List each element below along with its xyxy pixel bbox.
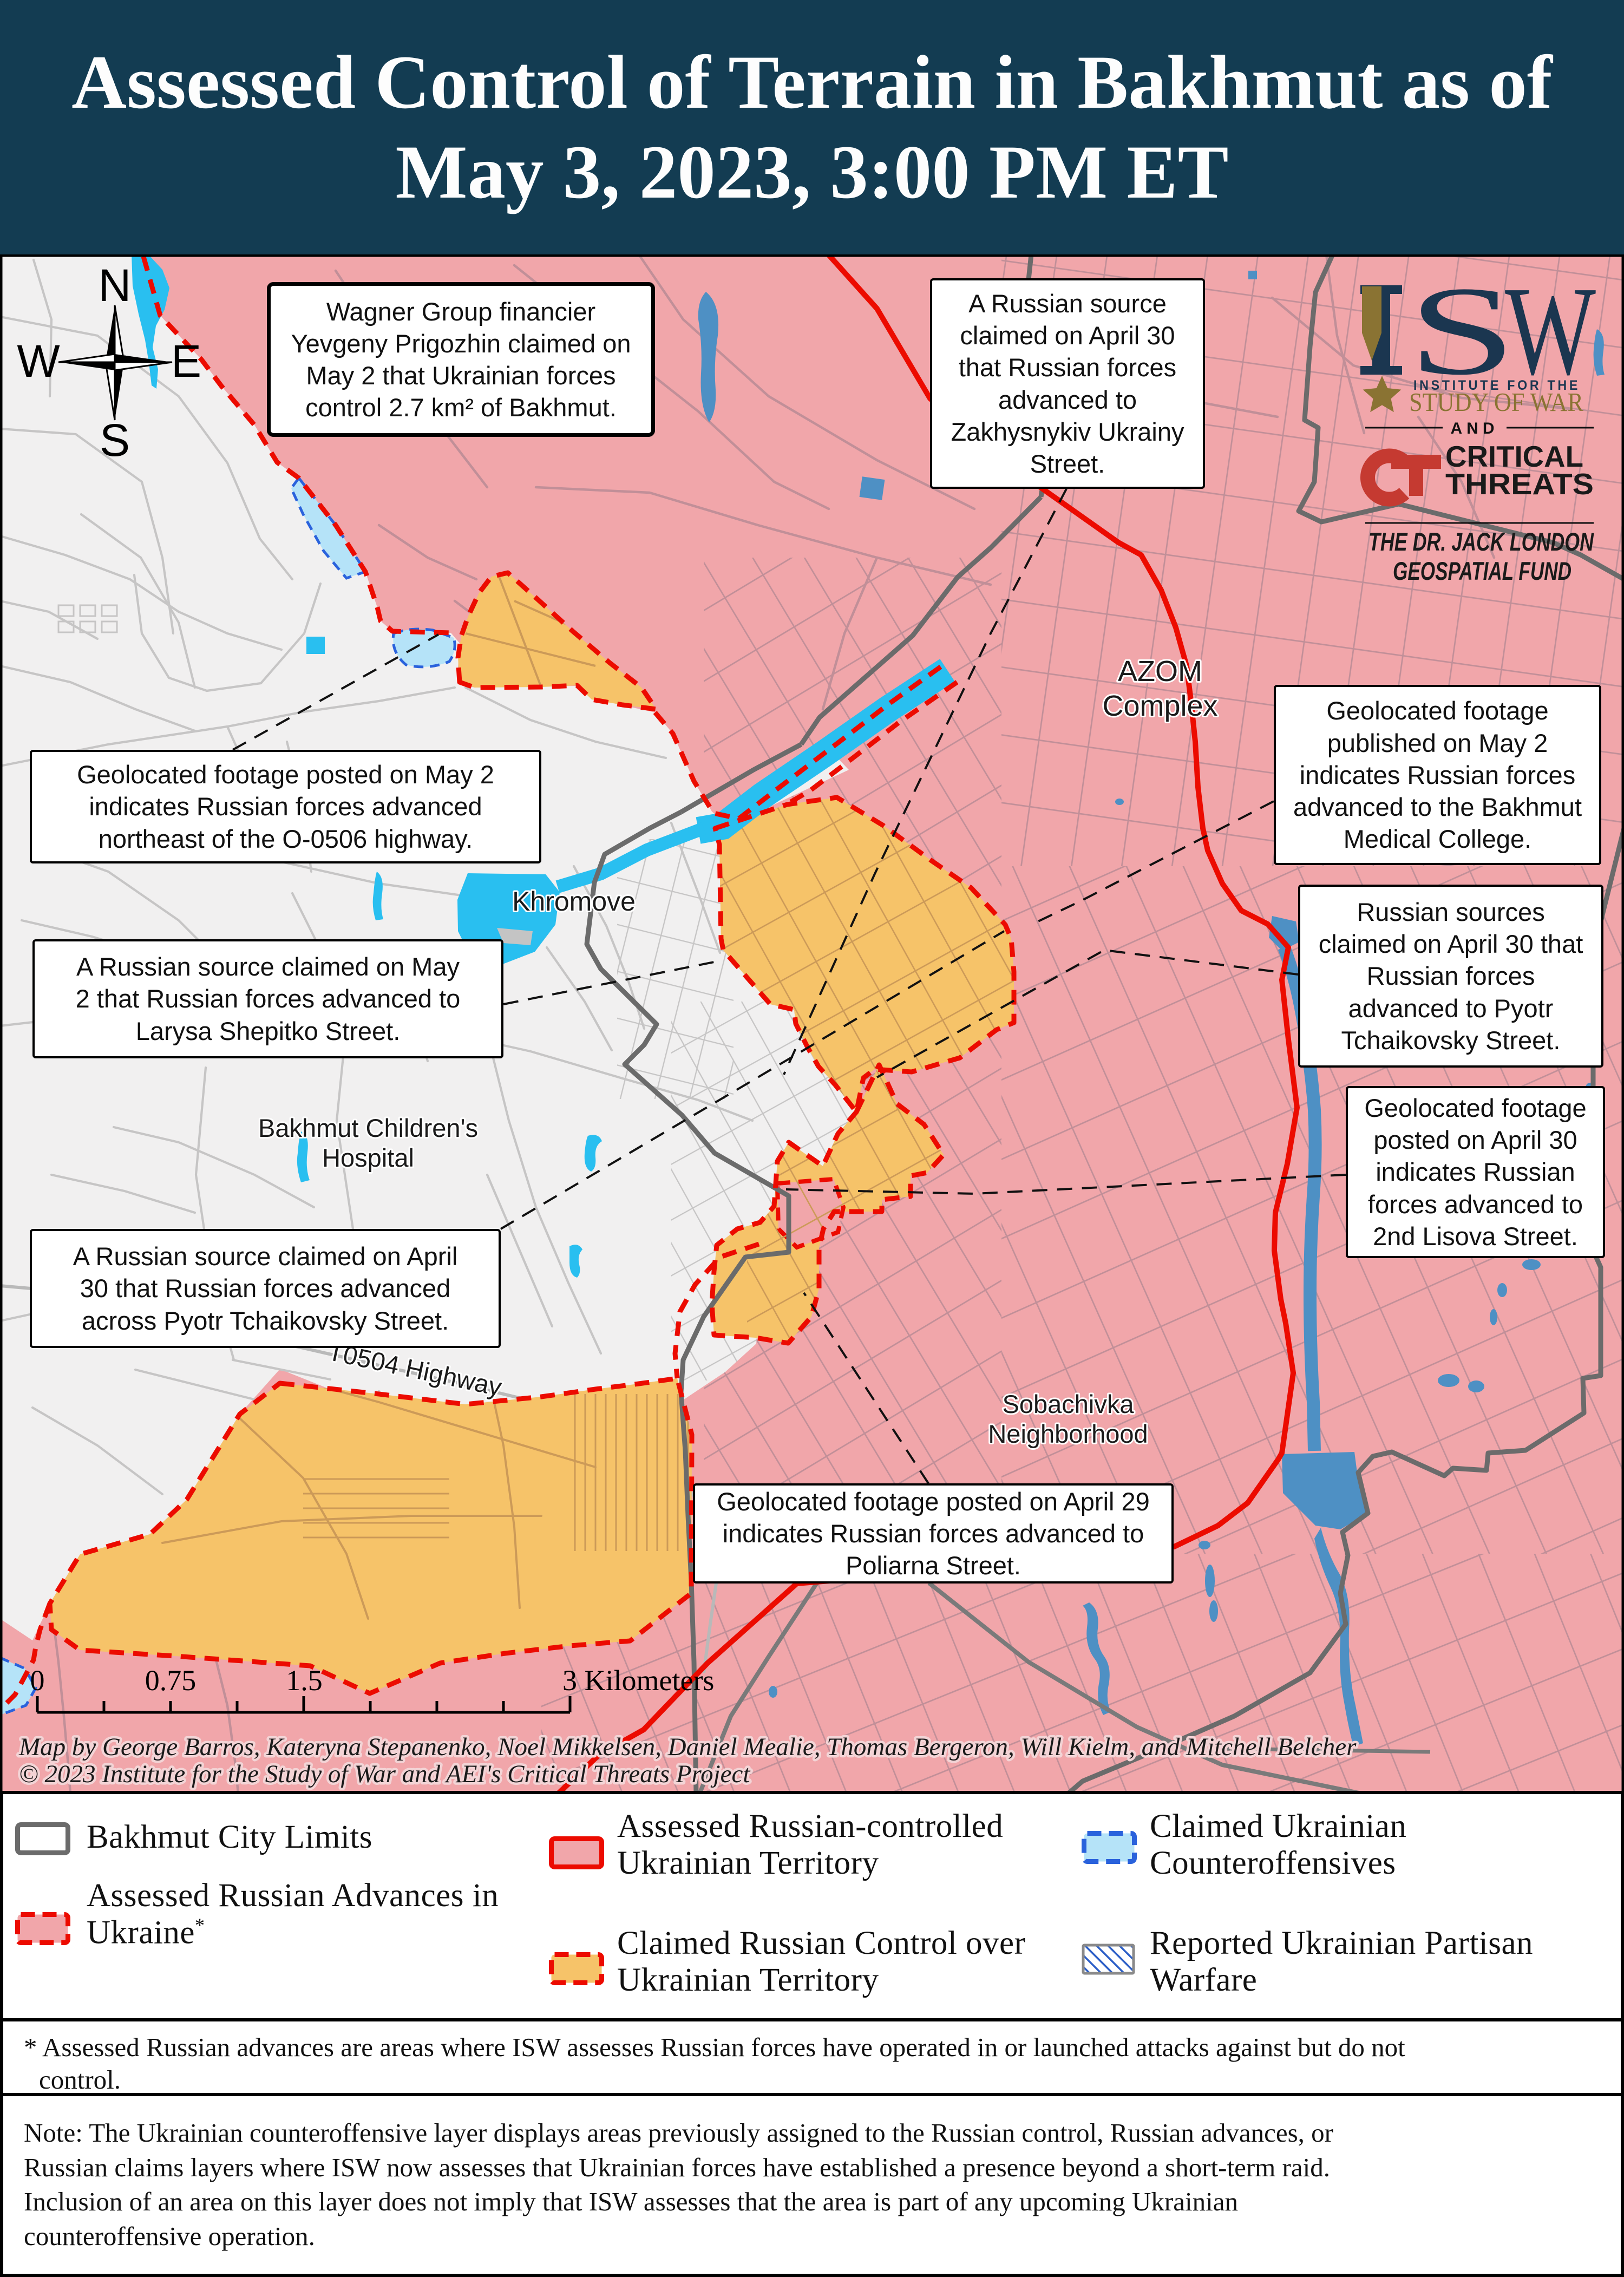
svg-text:Map by George Barros, Kateryna: Map by George Barros, Kateryna Stepanenk… <box>18 1733 1357 1761</box>
svg-text:S: S <box>100 415 130 466</box>
svg-text:3 Kilometers: 3 Kilometers <box>562 1664 714 1697</box>
svg-text:1.5: 1.5 <box>286 1664 323 1697</box>
svg-text:W: W <box>17 336 60 387</box>
svg-text:0.75: 0.75 <box>145 1664 197 1697</box>
svg-text:THE DR. JACK LONDON: THE DR. JACK LONDON <box>1368 527 1594 556</box>
svg-text:0: 0 <box>30 1664 45 1697</box>
svg-text:E: E <box>171 336 201 387</box>
svg-text:GEOSPATIAL FUND: GEOSPATIAL FUND <box>1393 557 1571 585</box>
svg-text:STUDY OF WAR: STUDY OF WAR <box>1409 387 1583 417</box>
svg-text:© 2023 Institute for the Study: © 2023 Institute for the Study of War an… <box>19 1760 750 1788</box>
svg-text:Khromove: Khromove <box>512 886 636 917</box>
svg-text:THREATS: THREATS <box>1445 467 1594 501</box>
svg-text:N: N <box>99 260 132 311</box>
svg-text:AND: AND <box>1451 420 1499 437</box>
